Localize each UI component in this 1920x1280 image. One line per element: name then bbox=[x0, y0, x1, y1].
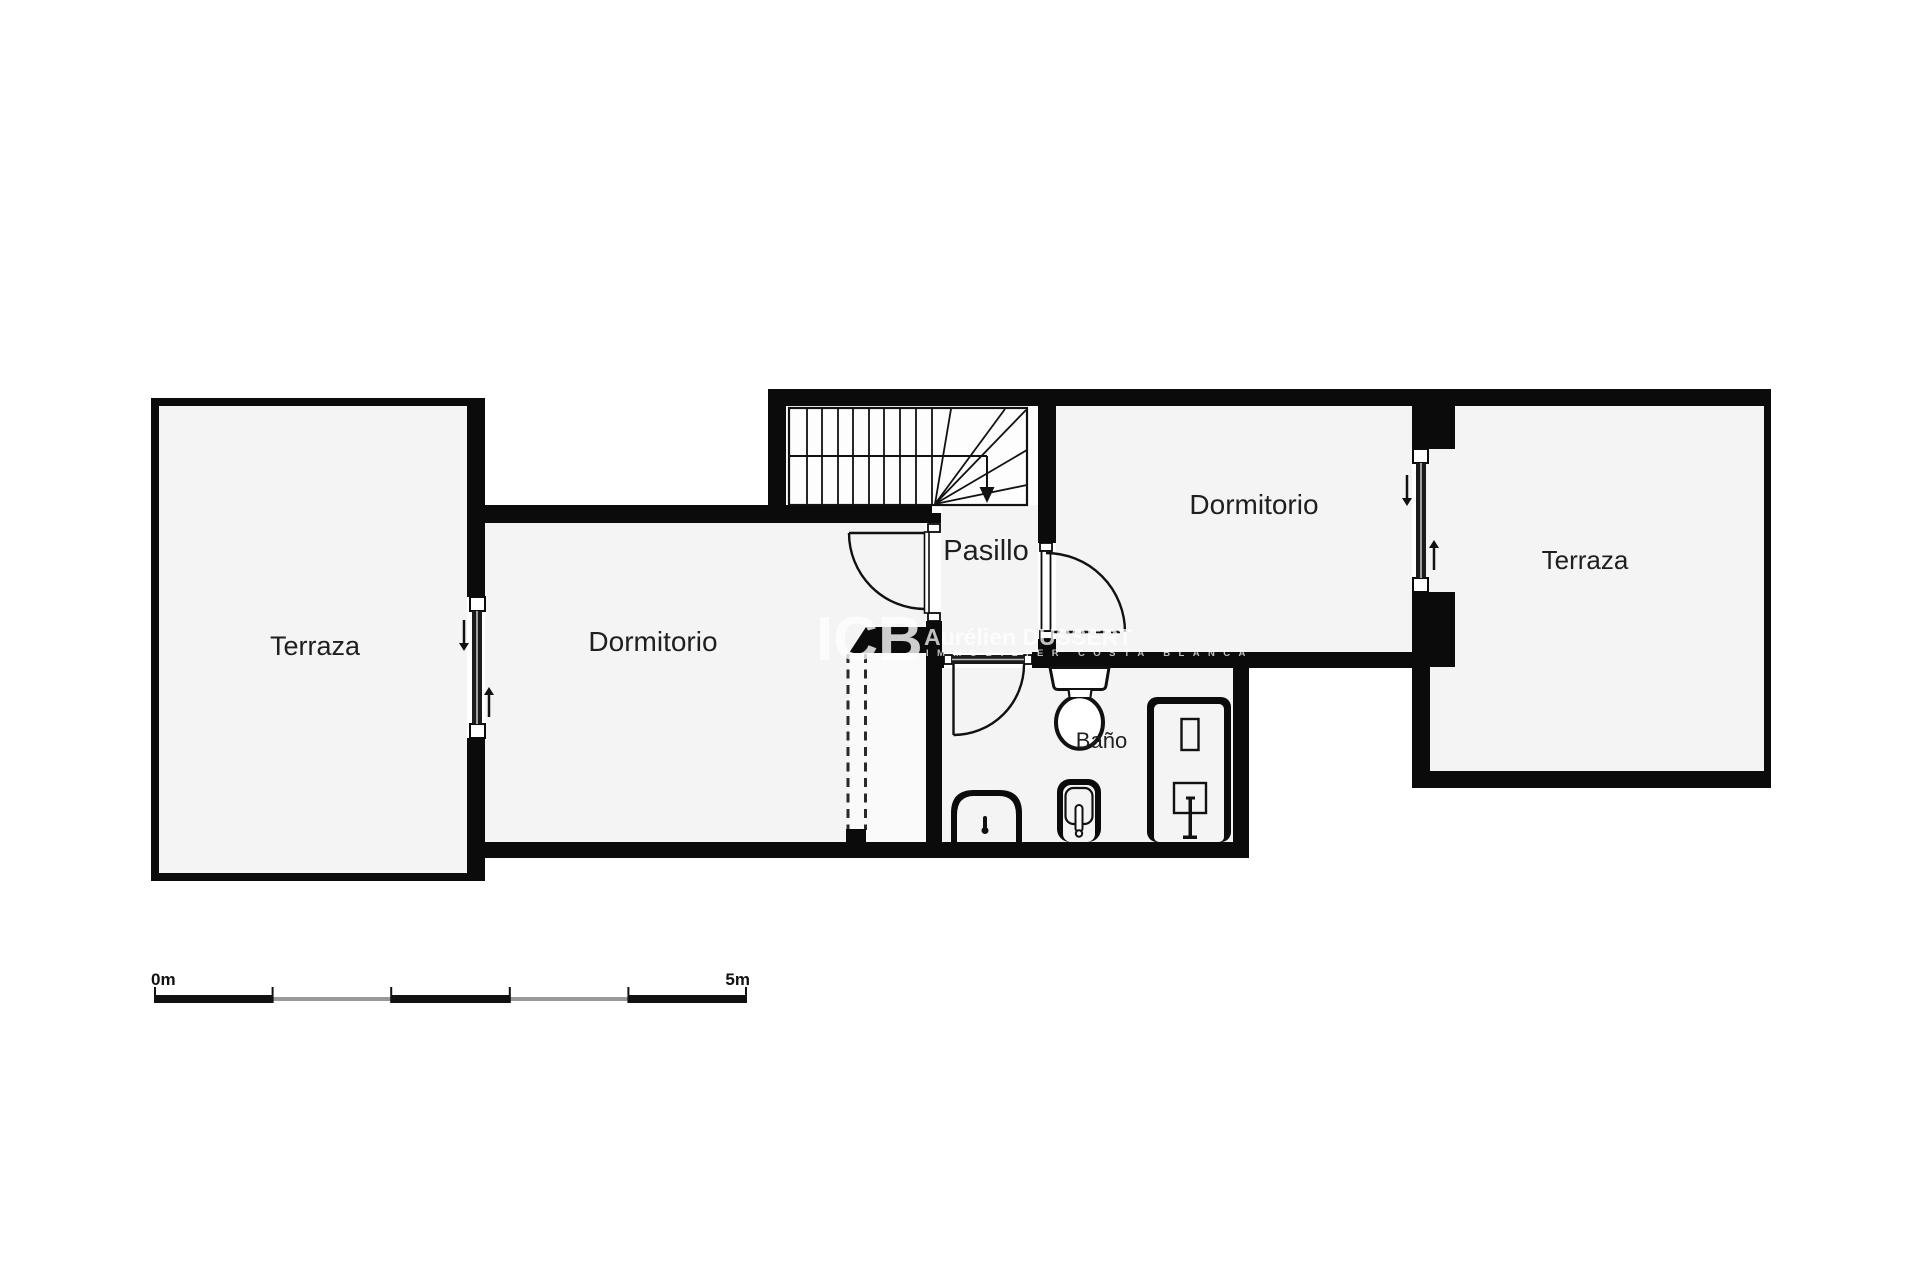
svg-text:Aurélien DUSSERT: Aurélien DUSSERT bbox=[924, 624, 1132, 650]
svg-text:0m: 0m bbox=[151, 970, 176, 989]
svg-text:Terraza: Terraza bbox=[270, 631, 361, 661]
svg-text:5m: 5m bbox=[725, 970, 750, 989]
svg-text:Terraza: Terraza bbox=[1542, 545, 1629, 575]
svg-text:Dormitorio: Dormitorio bbox=[1189, 489, 1318, 520]
svg-text:IMMOBILIER COSTA BLANCA: IMMOBILIER COSTA BLANCA bbox=[926, 648, 1254, 659]
svg-text:Dormitorio: Dormitorio bbox=[588, 626, 717, 657]
svg-text:Pasillo: Pasillo bbox=[943, 535, 1028, 567]
svg-text:ICB: ICB bbox=[816, 605, 923, 674]
svg-text:Baño: Baño bbox=[1076, 728, 1127, 753]
